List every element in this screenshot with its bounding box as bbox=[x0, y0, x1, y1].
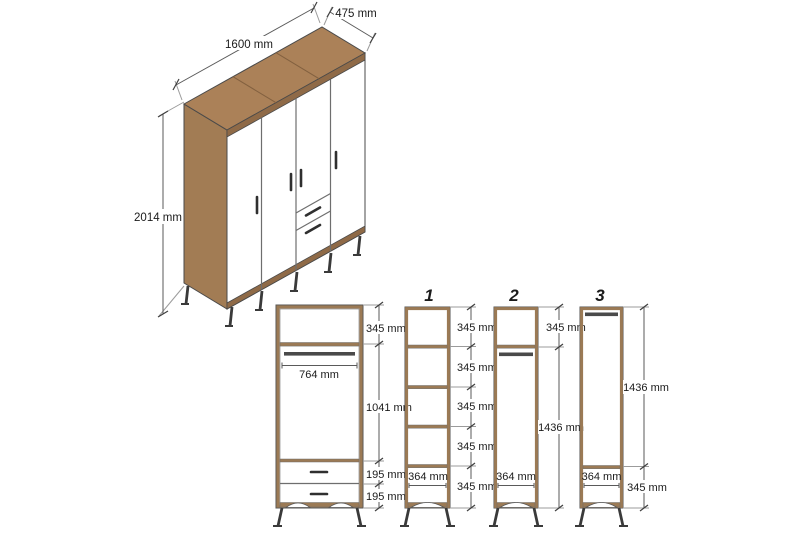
front-drawer1-height-label: 195 mm bbox=[366, 469, 406, 481]
iso-height-label: 2014 mm bbox=[134, 212, 182, 224]
unit-1-section-label: 345 mm bbox=[457, 481, 497, 493]
front-legs bbox=[273, 508, 366, 526]
unit-2-dimensions: 345 mm 1436 mm bbox=[538, 304, 586, 511]
front-rod-width-dimension: 764 mm bbox=[282, 363, 357, 382]
unit-3-number: 3 bbox=[595, 286, 605, 305]
shelf bbox=[408, 465, 447, 468]
hanging-rod bbox=[499, 353, 533, 357]
diagram-canvas: 2014 mm 1600 mm 475 mm bbox=[0, 0, 800, 533]
front-drawer-shelf bbox=[280, 459, 359, 462]
furniture-dimension-diagram: 2014 mm 1600 mm 475 mm bbox=[0, 0, 800, 533]
unit-3-bottom-height-label: 345 mm bbox=[627, 482, 667, 494]
front-elevation-view: 764 mm 345 mm 1041 bbox=[273, 302, 412, 526]
unit-3-width-label: 364 mm bbox=[582, 471, 622, 483]
unit-2-hanging-height-label: 1436 mm bbox=[538, 422, 584, 434]
unit-2-width-label: 364 mm bbox=[496, 471, 536, 483]
unit-1-width-label: 364 mm bbox=[408, 471, 448, 483]
unit-3-view: 3 364 mm 1436 mm 345 m bbox=[575, 286, 670, 526]
iso-depth-label: 475 mm bbox=[335, 8, 377, 20]
unit-3-legs bbox=[575, 508, 628, 526]
unit-2-number: 2 bbox=[508, 286, 519, 305]
iso-wardrobe-view: 2014 mm 1600 mm 475 mm bbox=[134, 2, 378, 326]
unit-1-view: 1 364 mm bbox=[400, 286, 497, 526]
wardrobe-side-panel bbox=[184, 104, 227, 309]
shelf bbox=[408, 386, 447, 389]
unit-1-section-label: 345 mm bbox=[457, 362, 497, 374]
front-frame bbox=[278, 307, 361, 506]
unit-2-view: 2 364 mm 345 mm 1436 m bbox=[489, 286, 586, 526]
hanging-rod bbox=[585, 313, 618, 317]
iso-width-label: 1600 mm bbox=[225, 39, 273, 51]
shelf bbox=[408, 345, 447, 348]
front-rod-width-label: 764 mm bbox=[299, 369, 339, 381]
shelf bbox=[583, 466, 620, 469]
front-top-shelf bbox=[280, 343, 359, 347]
front-hanging-rod bbox=[284, 352, 355, 356]
unit-1-number: 1 bbox=[424, 286, 433, 305]
unit-2-width-dimension: 364 mm bbox=[496, 470, 536, 488]
unit-1-width-dimension: 364 mm bbox=[408, 470, 448, 488]
unit-1-section-label: 345 mm bbox=[457, 322, 497, 334]
unit-2-legs bbox=[489, 508, 543, 526]
front-top-height-label: 345 mm bbox=[366, 323, 406, 335]
shelf bbox=[497, 345, 535, 348]
unit-3-dimensions: 1436 mm 345 mm bbox=[623, 304, 670, 511]
unit-1-section-label: 345 mm bbox=[457, 401, 497, 413]
unit-1-legs bbox=[400, 508, 455, 526]
unit-3-hanging-height-label: 1436 mm bbox=[623, 382, 669, 394]
unit-1-section-label: 345 mm bbox=[457, 441, 497, 453]
unit-1-dimensions: 345 mm 345 mm 345 mm 345 mm 345 mm bbox=[450, 304, 497, 511]
iso-height-dimension: 2014 mm bbox=[134, 102, 184, 317]
unit-3-width-dimension: 364 mm bbox=[582, 470, 622, 488]
front-drawer2-height-label: 195 mm bbox=[366, 491, 406, 503]
shelf bbox=[408, 425, 447, 428]
